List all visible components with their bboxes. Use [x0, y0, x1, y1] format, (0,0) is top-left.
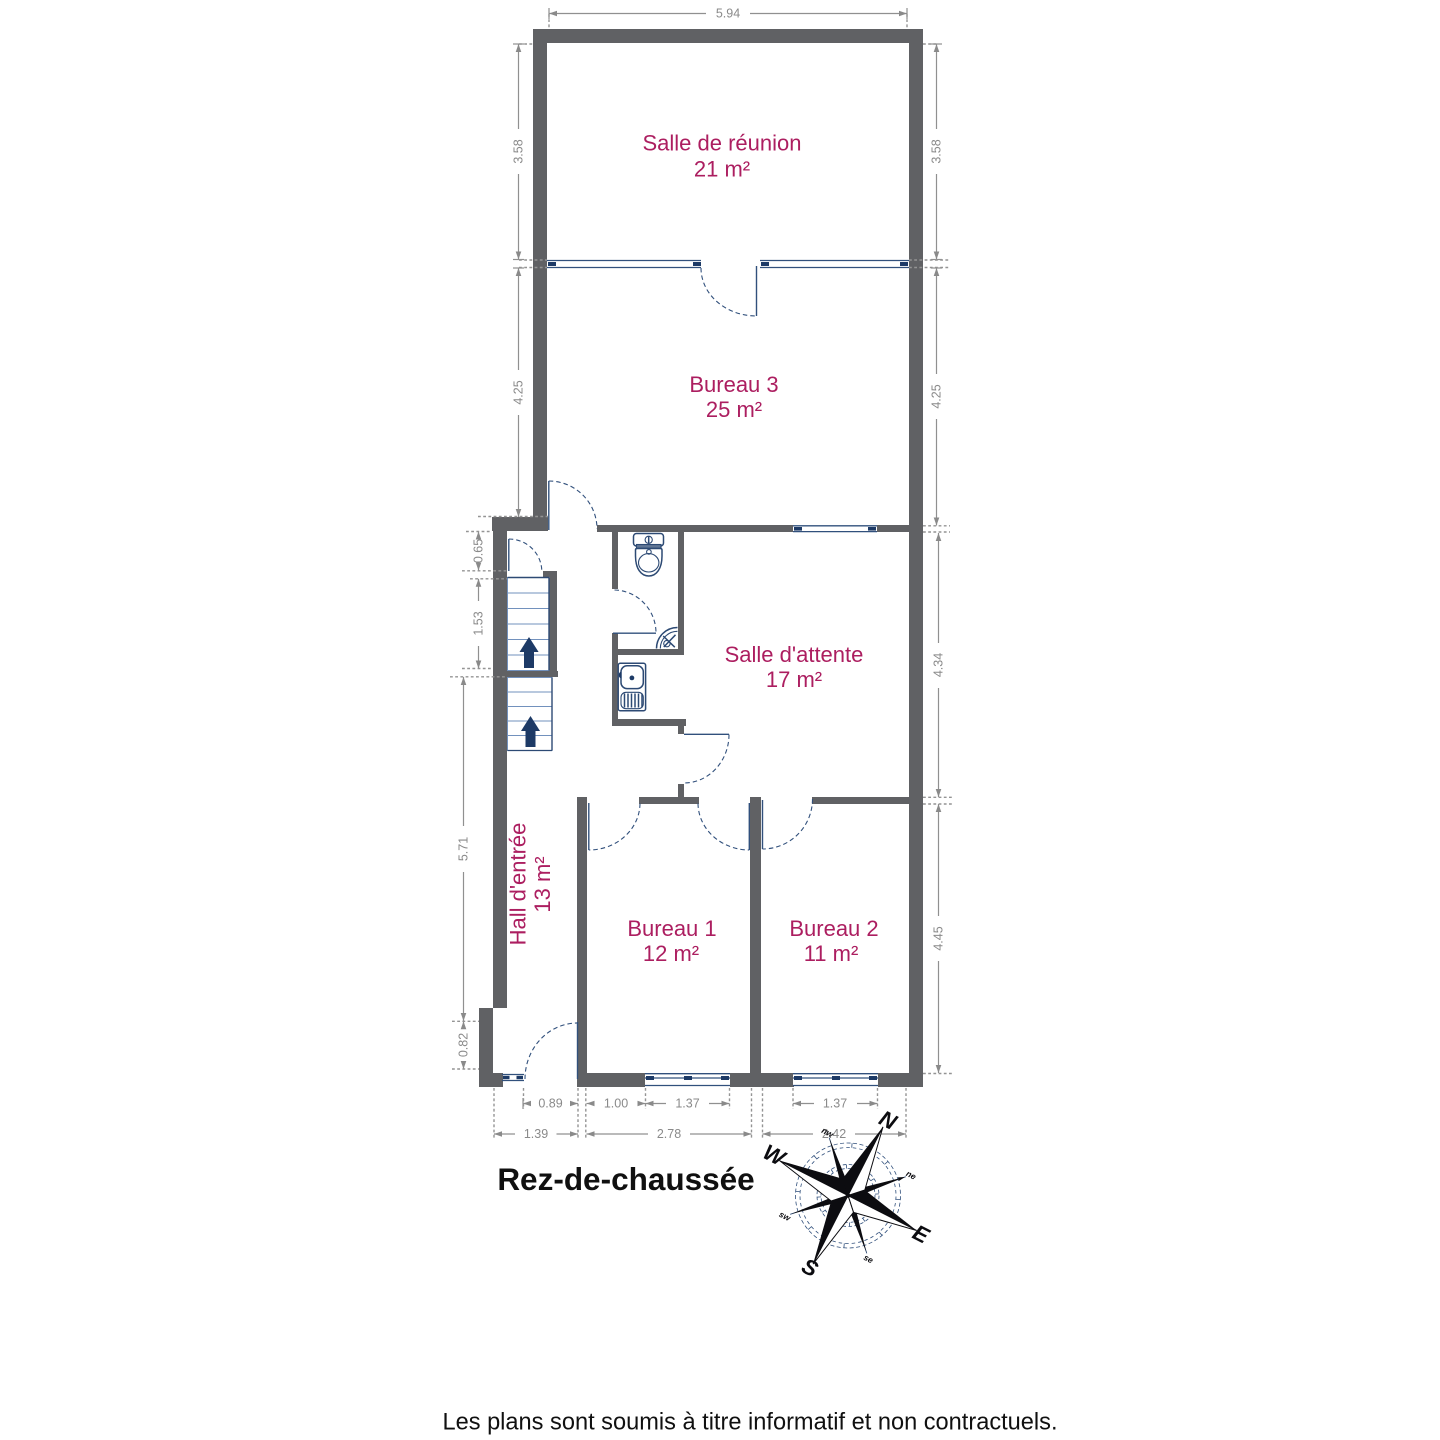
svg-text:4.34: 4.34	[932, 653, 946, 677]
svg-text:Rez-de-chaussée: Rez-de-chaussée	[497, 1161, 754, 1197]
svg-text:25 m²: 25 m²	[706, 397, 762, 422]
svg-text:3.58: 3.58	[512, 139, 526, 163]
svg-text:0.65: 0.65	[472, 539, 486, 563]
svg-text:0.89: 0.89	[538, 1097, 562, 1111]
svg-text:Salle d'attente: Salle d'attente	[725, 642, 864, 667]
svg-text:Salle de réunion: Salle de réunion	[642, 131, 801, 156]
svg-text:5.71: 5.71	[457, 837, 471, 861]
svg-text:Bureau 2: Bureau 2	[789, 916, 878, 941]
svg-text:2.78: 2.78	[657, 1127, 681, 1141]
svg-text:1.53: 1.53	[472, 611, 486, 635]
svg-text:12 m²: 12 m²	[643, 941, 699, 966]
svg-text:21 m²: 21 m²	[694, 157, 750, 182]
svg-text:17 m²: 17 m²	[766, 667, 822, 692]
svg-text:11 m²: 11 m²	[804, 941, 859, 966]
svg-text:Les plans sont soumis à titre: Les plans sont soumis à titre informatif…	[442, 1410, 1057, 1436]
svg-text:Bureau 1: Bureau 1	[627, 916, 716, 941]
svg-text:13 m²: 13 m²	[530, 856, 555, 912]
svg-text:1.37: 1.37	[675, 1097, 699, 1111]
svg-text:1.00: 1.00	[604, 1097, 628, 1111]
svg-text:4.25: 4.25	[930, 384, 944, 408]
svg-text:4.25: 4.25	[512, 380, 526, 404]
svg-text:3.58: 3.58	[930, 139, 944, 163]
svg-text:Hall d'entrée: Hall d'entrée	[506, 823, 531, 946]
svg-text:1.37: 1.37	[823, 1097, 847, 1111]
svg-text:Bureau 3: Bureau 3	[689, 372, 778, 397]
svg-text:0.82: 0.82	[457, 1033, 471, 1057]
svg-text:5.94: 5.94	[716, 7, 740, 21]
svg-text:1.39: 1.39	[524, 1127, 548, 1141]
svg-text:4.45: 4.45	[932, 926, 946, 950]
